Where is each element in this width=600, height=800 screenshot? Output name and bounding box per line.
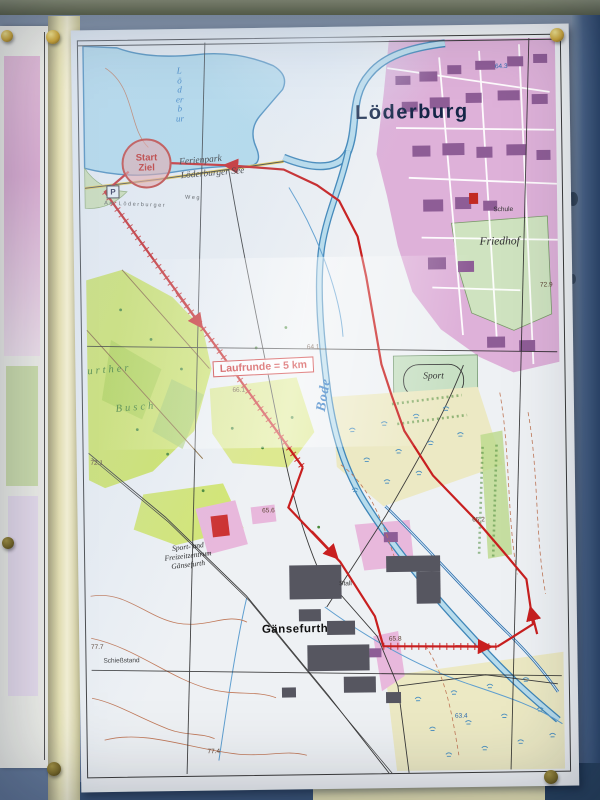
adjacent-sheet-border xyxy=(44,32,45,760)
church-symbol xyxy=(469,193,478,204)
lake-loederburger-see xyxy=(83,44,286,176)
adjacent-sheet-urban-area xyxy=(4,56,40,356)
board-top-rail xyxy=(0,0,600,15)
push-pin xyxy=(550,28,564,42)
push-pin xyxy=(1,30,13,42)
push-pin xyxy=(46,30,60,44)
map-sheet: Löderburg Start Ziel Laufrunde = 5 km P … xyxy=(71,24,580,793)
parking-icon: P xyxy=(106,185,119,198)
adjacent-sheet-field xyxy=(6,366,38,486)
push-pin xyxy=(2,537,14,549)
photo-of-map-board: Löderburg Start Ziel Laufrunde = 5 km P … xyxy=(0,0,600,800)
map-label-layer: Löderburg Start Ziel Laufrunde = 5 km P … xyxy=(77,34,571,779)
adjacent-sheet-area xyxy=(8,496,38,696)
adjacent-map-sheet xyxy=(0,26,50,768)
push-pin xyxy=(47,762,61,776)
ziel-label: Ziel xyxy=(138,163,155,174)
push-pin xyxy=(544,770,558,784)
